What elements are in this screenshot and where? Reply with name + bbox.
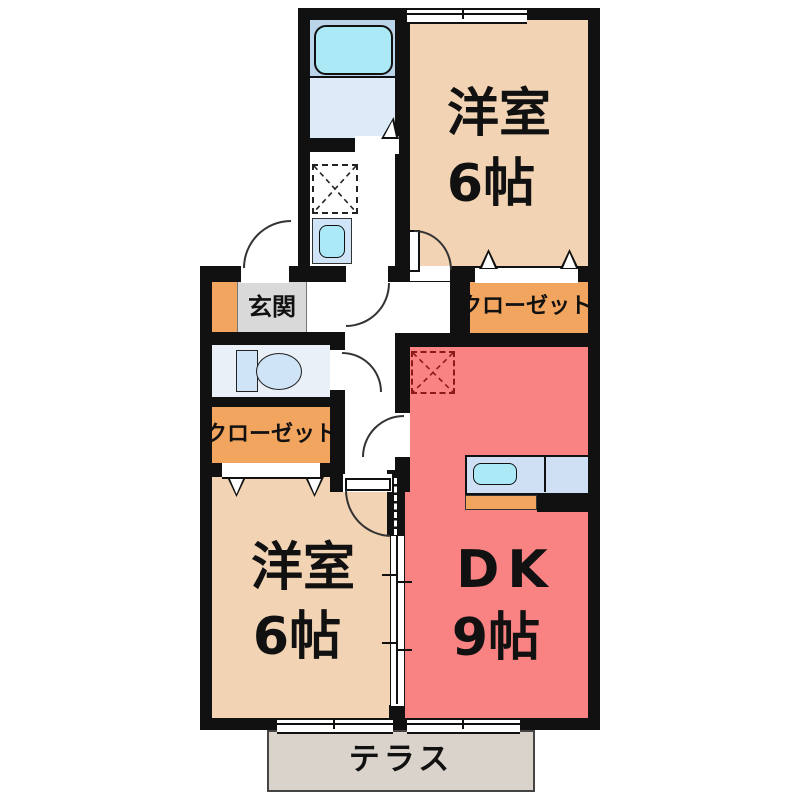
toilet-tank [236, 350, 258, 392]
window-bottom-right-midline [407, 723, 520, 725]
washing-machine-space [312, 164, 358, 214]
washbasin-sink [319, 225, 345, 258]
kitchen-sink [473, 463, 517, 485]
window-bottom-left-midline [277, 723, 393, 725]
dk-size: 9帖 [452, 612, 540, 664]
slider-tick-2a [382, 642, 398, 644]
window-top-tick [462, 9, 464, 19]
opening-laundry-door [346, 264, 388, 283]
wall-toilet-bottom [200, 397, 345, 407]
slider-tick-1a [382, 574, 398, 576]
entrance-step [212, 281, 237, 332]
closet-top-label: クローゼット [460, 296, 592, 318]
window-bottom-left-tick [333, 719, 335, 729]
window-bottom-right-tick [462, 719, 464, 729]
bedroom-bottom-label: 洋室 [251, 542, 355, 594]
slider-pocket-dashed [394, 478, 397, 535]
terrace-label: テラス [349, 745, 453, 776]
kitchen-counter-divider [544, 456, 546, 492]
window-bottom-left [277, 718, 393, 734]
dk-label: DK [456, 544, 555, 596]
wall-dk-top [395, 333, 600, 347]
bedroom-top [407, 20, 588, 268]
bedroom-bottom-size: 6帖 [253, 611, 341, 663]
floor-plan: 洋室 6帖 クローゼット 玄関 クローゼット 洋室 6帖 DK 9帖 テラス [0, 0, 800, 800]
window-top-midline [407, 13, 527, 15]
wall-right [588, 8, 600, 730]
entrance-door-arc [243, 220, 291, 268]
bedroom-top-size: 6帖 [447, 158, 535, 210]
washroom [310, 78, 395, 138]
toilet-door-arc [342, 352, 382, 392]
wall-kitchen-stub [537, 495, 600, 512]
entrance-label: 玄関 [248, 295, 296, 319]
sliding-door-centerline [396, 536, 398, 704]
dk-door-arc [362, 415, 404, 457]
wall-closet-bottom-flank-left [212, 463, 222, 477]
closet-bottom-label: クローゼット [205, 424, 337, 446]
wall-toilet-top [200, 332, 345, 345]
window-bottom-right [407, 718, 520, 734]
slider-tick-2b [396, 649, 412, 651]
bath-washroom-divider [310, 76, 395, 78]
refrigerator-space [411, 351, 455, 394]
kitchen-lower-cabinet [465, 495, 537, 510]
slider-tick-1b [396, 581, 412, 583]
bathtub [314, 25, 393, 75]
toilet-bowl [256, 353, 302, 390]
bedroom-top-label: 洋室 [447, 88, 551, 140]
window-top [407, 8, 527, 24]
wall-closet-bottom-flank-right [320, 463, 332, 477]
laundry-door-arc [346, 283, 390, 327]
opening-closet-bottom [222, 463, 320, 479]
